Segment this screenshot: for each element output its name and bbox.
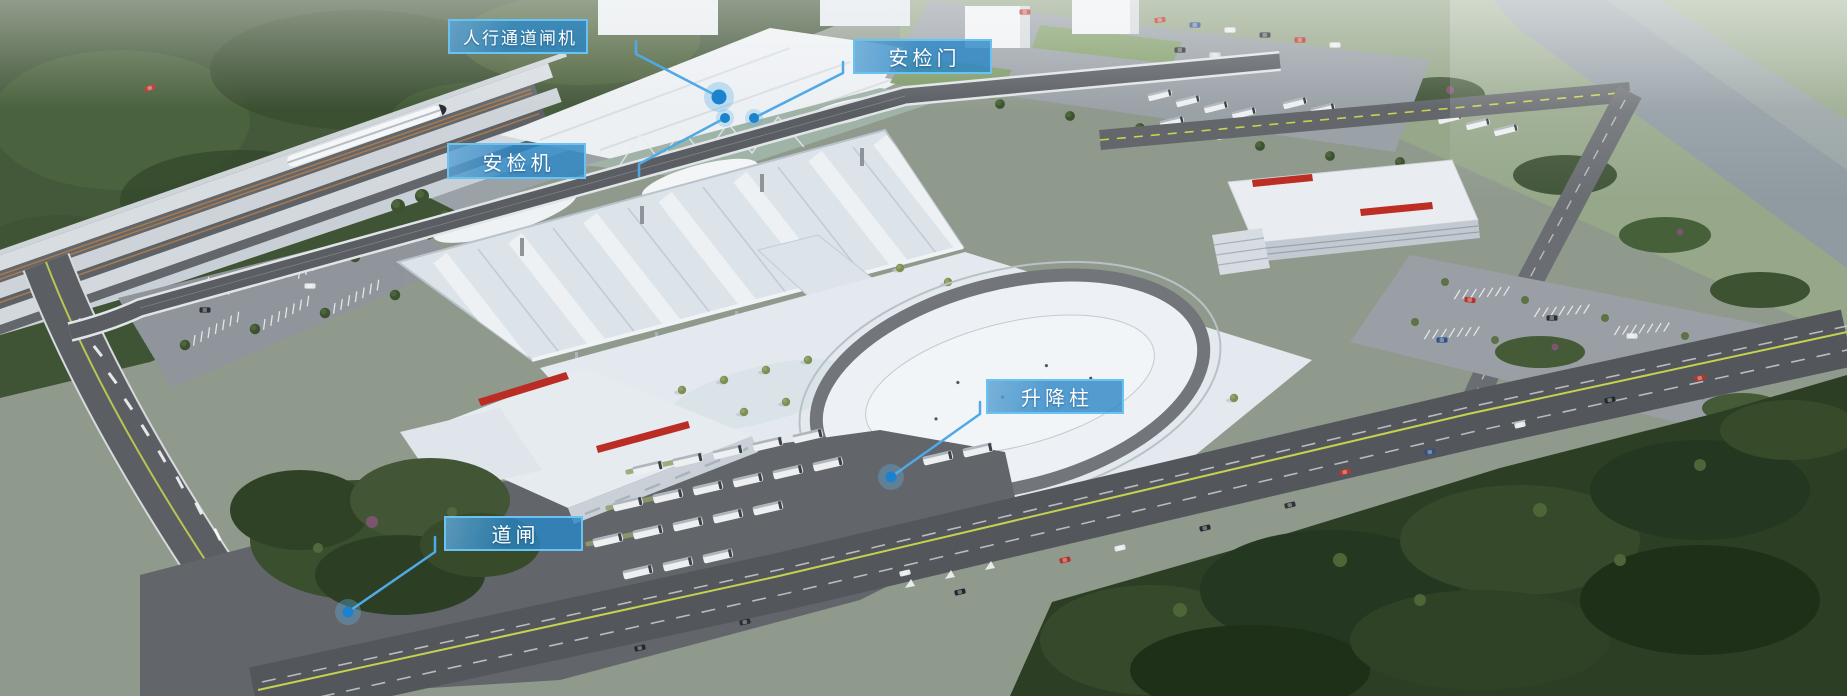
dot-lifting-bollard[interactable] (886, 472, 897, 483)
callout-road-barrier-label: 道闸 (492, 519, 540, 548)
callout-security-scanner[interactable]: 安检机 (447, 143, 586, 179)
callout-lifting-bollard[interactable]: 升降柱 (986, 379, 1124, 414)
callout-security-scanner-label: 安检机 (483, 147, 555, 176)
aerial-overview: 人行通道闸机 安检门 安检机 升降柱 道闸 (0, 0, 1847, 696)
callout-security-door-label: 安检门 (889, 42, 961, 71)
dot-security-door[interactable] (749, 113, 759, 123)
callout-road-barrier[interactable]: 道闸 (444, 516, 583, 551)
callout-pedestrian-gate-label: 人行通道闸机 (463, 24, 577, 49)
haze-overlay-right (1450, 0, 1847, 200)
dot-road-barrier[interactable] (343, 607, 354, 618)
callout-security-door[interactable]: 安检门 (853, 39, 992, 74)
scene-render (0, 0, 1847, 696)
dot-security-scanner[interactable] (720, 113, 730, 123)
callout-lifting-bollard-label: 升降柱 (1021, 382, 1093, 411)
dot-pedestrian-gate[interactable] (712, 90, 727, 105)
callout-pedestrian-gate[interactable]: 人行通道闸机 (448, 19, 588, 54)
